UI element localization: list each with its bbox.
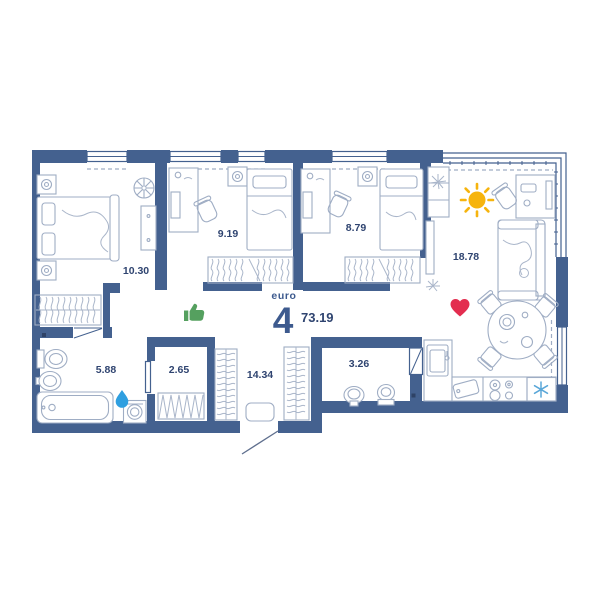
wardrobe-hangers-icon bbox=[215, 349, 237, 420]
water-drop-icon bbox=[116, 390, 129, 408]
room-area-label: 10.30 bbox=[123, 265, 149, 277]
monitor-icon bbox=[171, 192, 180, 218]
monitor-icon bbox=[303, 192, 312, 218]
plant-icon bbox=[426, 279, 440, 291]
unit-label: euro 4 73.19 bbox=[271, 290, 333, 341]
living-kitchen: 18.78 bbox=[424, 167, 559, 401]
room-area-label: 14.34 bbox=[247, 369, 273, 381]
sofa-icon bbox=[498, 220, 545, 300]
nightstand-icon bbox=[228, 167, 247, 186]
hall: euro 4 73.19 bbox=[184, 290, 334, 341]
thumbs-up-icon bbox=[184, 304, 204, 321]
nightstand-icon bbox=[358, 167, 377, 186]
nightstand-icon bbox=[37, 175, 56, 194]
room-area-label: 5.88 bbox=[96, 364, 117, 376]
door-icon bbox=[410, 348, 423, 375]
dining-table-icon bbox=[477, 290, 559, 371]
bench-icon bbox=[246, 403, 274, 421]
ceiling-fan-icon bbox=[134, 178, 154, 198]
vent-icon bbox=[42, 333, 46, 337]
bedroom-3: 8.79 bbox=[301, 167, 423, 283]
wardrobe-hangers-icon bbox=[208, 257, 293, 283]
floor-plan: 10.30 9.19 bbox=[0, 0, 600, 600]
shelves-icon bbox=[158, 393, 204, 419]
room-area-label: 8.79 bbox=[346, 222, 367, 234]
hallway: 14.34 bbox=[215, 347, 309, 454]
bathroom: 5.88 bbox=[36, 328, 146, 423]
wardrobe-hangers-icon bbox=[35, 295, 101, 325]
tv-icon bbox=[426, 221, 434, 274]
bathtub-icon bbox=[37, 392, 113, 423]
room-area-label: 3.26 bbox=[349, 358, 370, 370]
toilet-icon bbox=[37, 350, 67, 369]
monitor-icon bbox=[546, 181, 552, 209]
room-area-label: 18.78 bbox=[453, 251, 479, 263]
vent-icon bbox=[412, 394, 416, 398]
chair-icon bbox=[491, 182, 519, 211]
door-leaf-icon bbox=[146, 362, 151, 393]
pillow bbox=[386, 176, 417, 188]
wardrobe-hangers-icon bbox=[345, 257, 420, 283]
dresser-icon bbox=[141, 206, 156, 250]
wardrobe-hangers-icon bbox=[284, 347, 309, 420]
heart-icon bbox=[450, 299, 469, 317]
bedroom-2: 9.19 bbox=[169, 167, 293, 283]
nightstand-icon bbox=[37, 261, 56, 280]
room-area-label: 9.19 bbox=[218, 228, 239, 240]
pillow bbox=[253, 176, 286, 188]
bedroom-1: 10.30 bbox=[35, 175, 156, 325]
sun-icon bbox=[461, 184, 493, 216]
headboard bbox=[110, 195, 119, 261]
door-icon bbox=[74, 328, 102, 338]
rooms-count-label: 4 bbox=[273, 300, 294, 341]
total-area-label: 73.19 bbox=[301, 310, 334, 325]
entrance-door-icon bbox=[242, 431, 278, 454]
room-area-label: 2.65 bbox=[169, 364, 190, 376]
toilet-icon bbox=[378, 385, 395, 406]
